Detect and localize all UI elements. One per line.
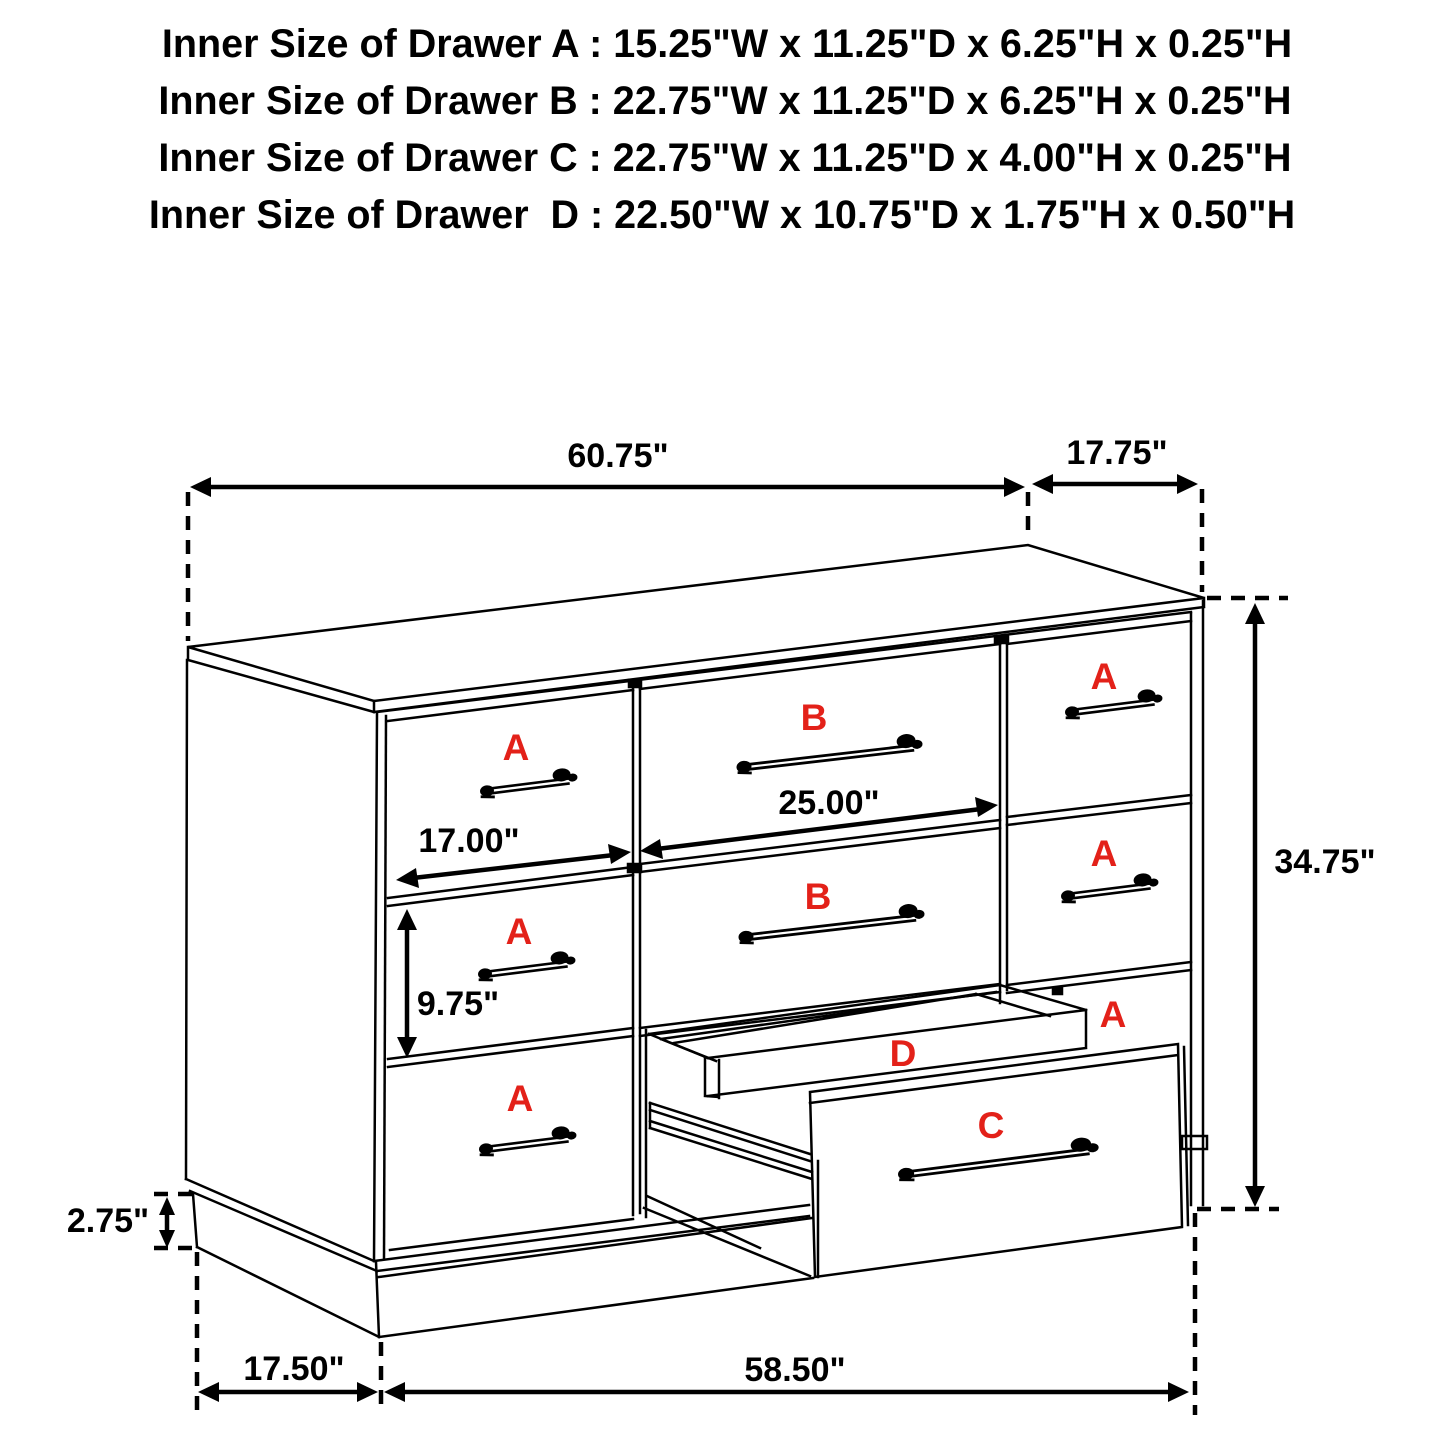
svg-text:B: B: [805, 876, 832, 917]
svg-text:A: A: [503, 727, 530, 768]
svg-text:9.75": 9.75": [417, 985, 499, 1023]
svg-text:58.50": 58.50": [744, 1351, 845, 1389]
svg-text:D: D: [890, 1033, 917, 1074]
svg-text:A: A: [1091, 656, 1118, 697]
svg-text:60.75": 60.75": [567, 437, 668, 475]
svg-text:Inner Size of Drawer B : 22.75: Inner Size of Drawer B : 22.75"W x 11.25…: [158, 79, 1291, 123]
svg-text:17.00": 17.00": [418, 822, 519, 860]
svg-text:A: A: [506, 911, 533, 952]
svg-text:A: A: [1100, 994, 1127, 1035]
svg-text:2.75": 2.75": [67, 1202, 149, 1240]
svg-text:C: C: [978, 1105, 1005, 1146]
svg-text:A: A: [1091, 833, 1118, 874]
svg-text:A: A: [507, 1078, 534, 1119]
svg-text:34.75": 34.75": [1274, 843, 1375, 881]
svg-text:25.00": 25.00": [778, 784, 879, 822]
svg-text:17.50": 17.50": [243, 1350, 344, 1388]
svg-text:B: B: [801, 697, 828, 738]
svg-text:Inner Size of Drawer D : 22.5: Inner Size of Drawer D : 22.50"W x 10.75…: [149, 193, 1295, 237]
svg-text:Inner Size of Drawer C : 22.75: Inner Size of Drawer C : 22.75"W x 11.25…: [158, 136, 1291, 180]
svg-text:17.75": 17.75": [1066, 434, 1167, 472]
svg-text:Inner Size of Drawer A : 15.25: Inner Size of Drawer A : 15.25"W x 11.25…: [162, 22, 1292, 66]
